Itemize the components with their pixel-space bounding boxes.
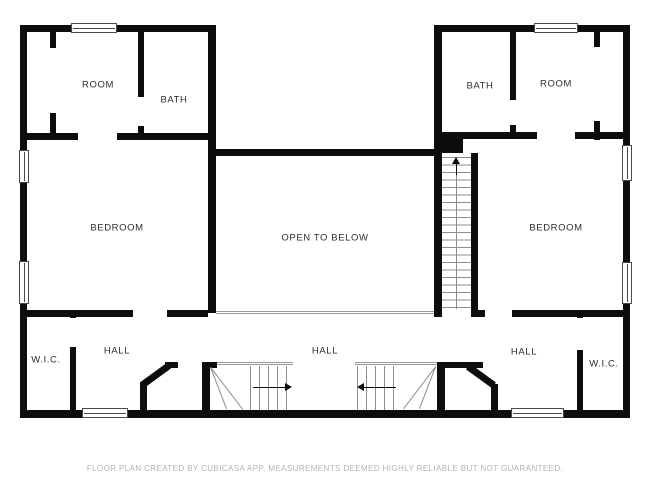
winder-tread-line bbox=[210, 367, 227, 409]
room-label-hall-right: HALL bbox=[511, 347, 537, 358]
room-label-bedroom-right: BEDROOM bbox=[529, 223, 582, 234]
window bbox=[534, 23, 578, 33]
wall bbox=[202, 362, 210, 410]
wall bbox=[138, 126, 144, 134]
room-label-open-to-below: OPEN TO BELOW bbox=[281, 233, 368, 244]
wall bbox=[208, 149, 442, 156]
window bbox=[82, 408, 128, 418]
wall bbox=[471, 310, 485, 317]
wall bbox=[594, 31, 600, 47]
room-label-hall-left: HALL bbox=[104, 346, 130, 357]
wall bbox=[623, 304, 630, 418]
stair-arrow-stem bbox=[364, 387, 396, 388]
winder-tread-line bbox=[210, 367, 243, 410]
room-label-bedroom-left: BEDROOM bbox=[90, 223, 143, 234]
wall bbox=[50, 113, 56, 134]
stair-opening-edge bbox=[355, 362, 437, 365]
angled-wall bbox=[141, 363, 171, 387]
wall bbox=[491, 384, 498, 410]
wall bbox=[70, 347, 76, 410]
window bbox=[71, 23, 117, 33]
floor-plan: ROOM BATH BATH ROOM BEDROOM OPEN TO BELO… bbox=[0, 0, 650, 487]
wall bbox=[510, 31, 516, 100]
wall bbox=[434, 25, 442, 317]
footer-disclaimer: FLOOR PLAN CREATED BY CUBICASA APP. MEAS… bbox=[0, 464, 650, 473]
window bbox=[622, 145, 632, 181]
wall bbox=[138, 31, 144, 97]
wall bbox=[577, 310, 583, 318]
wall bbox=[20, 133, 78, 140]
stair-landing-marker bbox=[436, 132, 463, 153]
wall bbox=[70, 310, 76, 318]
room-label-hall-center: HALL bbox=[312, 346, 338, 357]
window bbox=[622, 262, 632, 304]
wall bbox=[208, 25, 216, 313]
wall bbox=[117, 133, 216, 140]
stair-arrow-stem bbox=[456, 164, 457, 175]
wall bbox=[20, 183, 27, 261]
room-label-wic-right: W.I.C. bbox=[589, 359, 618, 370]
window bbox=[19, 261, 29, 304]
wall bbox=[623, 25, 630, 145]
stair-opening-edge bbox=[217, 362, 293, 365]
wall bbox=[27, 310, 133, 317]
open-to-below-boundary bbox=[216, 311, 434, 314]
winder-tread-line bbox=[419, 367, 436, 409]
room-label-wic-left: W.I.C. bbox=[31, 355, 60, 366]
wall bbox=[167, 310, 208, 317]
wall bbox=[577, 350, 583, 410]
winder-tread-line bbox=[403, 366, 436, 409]
room-label-room-left: ROOM bbox=[82, 80, 114, 91]
wall bbox=[471, 153, 478, 310]
wall bbox=[512, 310, 623, 317]
wall bbox=[510, 125, 516, 133]
stair-right-arrow-icon bbox=[285, 383, 292, 391]
stair-left-arrow-icon bbox=[357, 383, 364, 391]
wall bbox=[50, 31, 56, 48]
wall bbox=[437, 362, 445, 410]
room-label-room-right: ROOM bbox=[540, 79, 572, 90]
wall bbox=[434, 25, 630, 32]
staircase-center-line bbox=[456, 159, 457, 309]
room-label-bath-left: BATH bbox=[160, 95, 187, 106]
wall bbox=[20, 304, 27, 418]
stair-arrow-stem bbox=[253, 387, 285, 388]
stair-up-arrow-icon bbox=[452, 157, 460, 164]
wall bbox=[594, 121, 600, 140]
wall bbox=[623, 181, 630, 262]
window bbox=[19, 150, 29, 183]
window bbox=[511, 408, 564, 418]
room-label-bath-right: BATH bbox=[466, 81, 493, 92]
